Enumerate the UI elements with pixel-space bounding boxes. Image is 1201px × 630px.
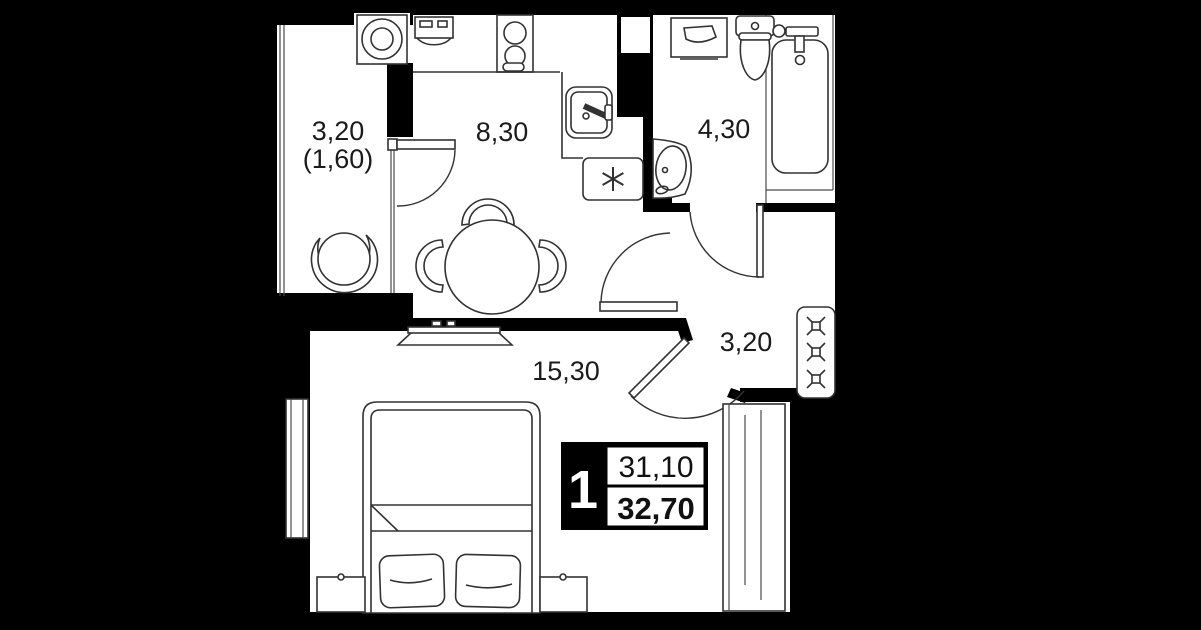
fridge-icon (583, 158, 643, 200)
balcony-area-label: 3,20 (312, 116, 365, 146)
tall-cabinet-icon (723, 404, 785, 611)
washbasin-icon (671, 18, 727, 59)
living-area-label: 15,30 (532, 356, 600, 386)
floor-plan: 3,20 (1,60) 8,30 4,30 3,20 15,30 1 31,10… (0, 0, 1201, 630)
bathtub-icon (772, 25, 828, 173)
nightstand-icon (540, 574, 587, 612)
living-space-value: 31,10 (618, 451, 693, 484)
pillow-icon (379, 554, 445, 608)
bathroom-door-opening (690, 200, 756, 214)
area-badge: 1 31,10 32,70 (561, 442, 708, 530)
kitchen-floor-strip (617, 117, 643, 318)
dining-table-icon (445, 220, 539, 314)
pillow-icon (455, 554, 520, 608)
nightstand-icon (317, 574, 365, 612)
bed-icon (363, 402, 540, 613)
kitchen-sink-icon (566, 87, 612, 138)
washing-machine-icon (357, 15, 407, 64)
rooms-count: 1 (568, 460, 598, 520)
kitchen-area-label: 8,30 (476, 117, 529, 147)
stove-icon (497, 15, 533, 72)
bathroom-sink-icon (653, 139, 691, 198)
window (286, 399, 308, 538)
vent-niche (621, 17, 650, 53)
wardrobe-icon (797, 307, 835, 398)
balcony-reduced-area-label: (1,60) (303, 144, 374, 174)
hallway-area-label: 3,20 (720, 327, 773, 357)
bathroom-area-label: 4,30 (698, 114, 751, 144)
total-space-value: 32,70 (617, 491, 695, 526)
